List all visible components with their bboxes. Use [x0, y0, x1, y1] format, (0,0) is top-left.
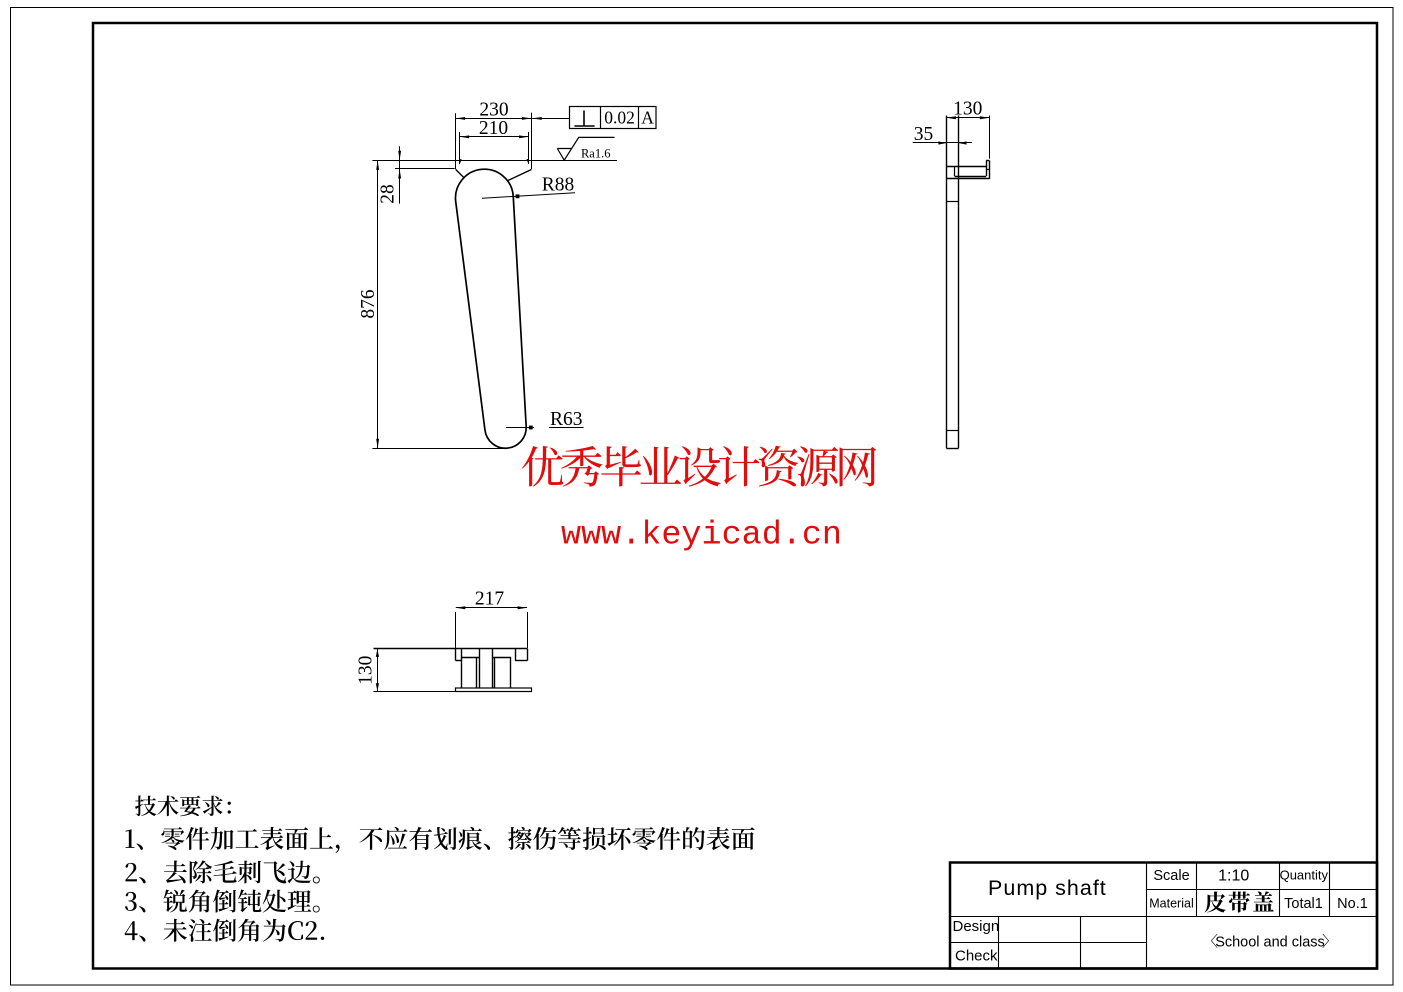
svg-text:35: 35: [914, 124, 934, 145]
svg-text:R63: R63: [550, 409, 583, 430]
svg-text:130: 130: [356, 656, 377, 685]
svg-text:www.keyicad.cn: www.keyicad.cn: [561, 517, 842, 555]
svg-text:Design: Design: [953, 918, 1000, 935]
svg-text:876: 876: [358, 289, 379, 319]
svg-text:28: 28: [378, 184, 399, 204]
svg-text:Scale: Scale: [1153, 868, 1189, 884]
svg-text:Total1: Total1: [1284, 896, 1323, 912]
svg-text:Ra1.6: Ra1.6: [581, 147, 611, 161]
svg-text:School and class: School and class: [1215, 935, 1325, 951]
svg-text:Quantity: Quantity: [1280, 868, 1329, 883]
svg-text:1:10: 1:10: [1218, 868, 1249, 885]
svg-text:Material: Material: [1149, 897, 1193, 911]
svg-text:Pump shaft: Pump shaft: [988, 876, 1107, 900]
svg-text:A: A: [641, 107, 654, 127]
svg-text:Check: Check: [955, 948, 998, 965]
svg-text:0.02: 0.02: [604, 107, 635, 127]
svg-text:130: 130: [953, 99, 982, 120]
svg-text:210: 210: [479, 118, 508, 139]
svg-text:217: 217: [475, 589, 505, 610]
svg-text:No.1: No.1: [1337, 896, 1368, 912]
svg-text:R88: R88: [542, 175, 575, 196]
